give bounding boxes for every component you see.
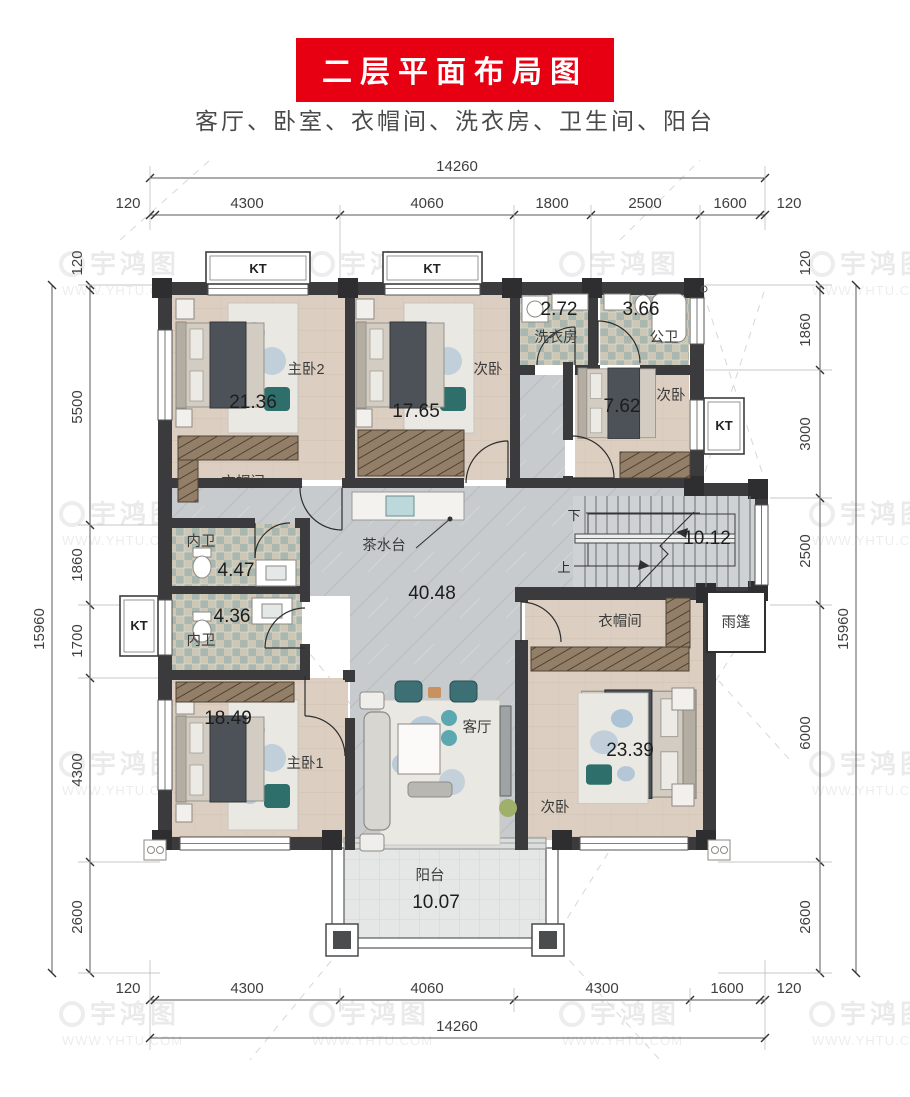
dim-label: 1860 bbox=[797, 313, 814, 346]
sink-basin bbox=[262, 604, 282, 618]
balcony-column-core bbox=[333, 931, 351, 949]
watermark bbox=[561, 999, 683, 1048]
armchair bbox=[450, 681, 477, 702]
dim-label: 120 bbox=[776, 980, 801, 997]
bed-bottom-label: 次卧 bbox=[541, 799, 570, 816]
side-table bbox=[360, 692, 384, 709]
dim-label: 5500 bbox=[69, 390, 86, 423]
dim-label: 2500 bbox=[628, 195, 661, 212]
hall-floor bbox=[520, 375, 565, 486]
wardrobe bbox=[176, 682, 294, 702]
stool bbox=[441, 730, 457, 746]
dim-label: 4060 bbox=[410, 195, 443, 212]
dim-label: 1700 bbox=[69, 624, 86, 657]
stair-down-label: 下 bbox=[567, 508, 580, 523]
bed-top bbox=[356, 322, 444, 408]
nightstand bbox=[176, 409, 192, 427]
dim-label: 6000 bbox=[797, 716, 814, 749]
master1-area: 18.49 bbox=[204, 708, 252, 729]
dim-label: 2500 bbox=[797, 534, 814, 567]
tea-sink bbox=[386, 496, 414, 516]
bed-top-area: 17.65 bbox=[392, 401, 440, 422]
laundry-label: 洗衣房 bbox=[534, 329, 578, 346]
pub-bath-label: 公卫 bbox=[650, 330, 679, 346]
kt-box: KT bbox=[206, 252, 310, 284]
living-label: 客厅 bbox=[463, 719, 492, 736]
dim-label: 120 bbox=[115, 195, 140, 212]
floorplan-page: 二层平面布局图 客厅、卧室、衣帽间、洗衣房、卫生间、阳台 bbox=[0, 0, 910, 1097]
bed-right-area: 7.62 bbox=[604, 396, 641, 417]
bath-low-area: 4.36 bbox=[214, 606, 251, 627]
wardrobe bbox=[358, 430, 464, 476]
wardrobe bbox=[620, 452, 690, 478]
stool bbox=[441, 710, 457, 726]
balcony-area: 10.07 bbox=[412, 892, 460, 913]
dim-label: 2600 bbox=[797, 900, 814, 933]
dim-label: 120 bbox=[115, 980, 140, 997]
wardrobe bbox=[178, 460, 198, 502]
wardrobe bbox=[666, 598, 690, 648]
dim-label: 4300 bbox=[69, 753, 86, 786]
dim-label: 4300 bbox=[230, 980, 263, 997]
nightstand bbox=[672, 784, 694, 806]
living-area: 40.48 bbox=[408, 583, 456, 604]
kt-label: KT bbox=[715, 418, 732, 433]
dim-label: 3000 bbox=[797, 417, 814, 450]
dim-label: 15960 bbox=[835, 608, 852, 650]
canopy-label: 雨篷 bbox=[722, 614, 751, 631]
dim-label: 4300 bbox=[230, 195, 263, 212]
watermark bbox=[811, 499, 910, 548]
tv-bench-table bbox=[408, 782, 452, 797]
side-table bbox=[360, 834, 384, 851]
stair-up-label: 上 bbox=[557, 560, 570, 575]
stairs-area: 10.12 bbox=[683, 528, 731, 549]
balcony-column-core bbox=[539, 931, 557, 949]
armchair bbox=[395, 681, 422, 702]
dim-label: 120 bbox=[69, 250, 86, 275]
dim-label: 120 bbox=[776, 195, 801, 212]
tv-cabinet bbox=[500, 706, 511, 796]
kt-label: KT bbox=[423, 261, 440, 276]
watermark bbox=[811, 249, 910, 298]
nightstand bbox=[356, 409, 372, 427]
dim-label: 1800 bbox=[535, 195, 568, 212]
nightstand bbox=[176, 804, 192, 822]
bed-bottom-area: 23.39 bbox=[606, 740, 654, 761]
watermark bbox=[311, 999, 433, 1048]
dim-label: 4060 bbox=[410, 980, 443, 997]
plant bbox=[499, 799, 517, 817]
cloak-left-label: 衣帽间 bbox=[221, 474, 265, 491]
cloak-right-label: 衣帽间 bbox=[598, 613, 642, 630]
dim-label: 14260 bbox=[436, 1018, 478, 1035]
pub-bath-area: 3.66 bbox=[623, 299, 660, 320]
dim-bottom: 120 4300 4060 4300 1600 120 14260 bbox=[115, 960, 801, 1050]
dim-label: 14260 bbox=[436, 158, 478, 175]
kt-box: KT bbox=[120, 596, 158, 656]
master2-area: 21.36 bbox=[229, 392, 277, 413]
kt-box: KT bbox=[383, 252, 482, 284]
bed-top-label: 次卧 bbox=[474, 361, 503, 378]
watermark bbox=[811, 999, 910, 1048]
master2-label: 主卧2 bbox=[287, 361, 324, 378]
balcony-label: 阳台 bbox=[416, 867, 445, 884]
kt-label: KT bbox=[249, 261, 266, 276]
dim-label: 4300 bbox=[585, 980, 618, 997]
sofa bbox=[364, 712, 390, 830]
tea-label: 茶水台 bbox=[362, 537, 406, 554]
dim-label: 1600 bbox=[710, 980, 743, 997]
wardrobe bbox=[531, 647, 689, 671]
master1-label: 主卧1 bbox=[286, 755, 323, 772]
bath-up-label: 内卫 bbox=[187, 533, 216, 550]
bed-right-label: 次卧 bbox=[657, 387, 686, 404]
canopy: 雨篷 bbox=[707, 592, 765, 652]
sink-basin bbox=[266, 566, 286, 580]
kt-label: KT bbox=[130, 618, 147, 633]
dim-label: 15960 bbox=[31, 608, 48, 650]
ottoman bbox=[428, 687, 441, 698]
balcony-wall bbox=[332, 938, 558, 948]
wardrobe bbox=[178, 436, 298, 460]
dim-label: 120 bbox=[797, 250, 814, 275]
nightstand bbox=[672, 688, 694, 710]
floorplan-canvas: 宇鸿图 WWW.YHTU.COM bbox=[0, 0, 910, 1097]
nightstand bbox=[176, 299, 194, 319]
laundry-area: 2.72 bbox=[541, 299, 578, 320]
dim-label: 1600 bbox=[713, 195, 746, 212]
watermark bbox=[811, 749, 910, 798]
coffee-table bbox=[398, 724, 440, 774]
kt-box: KT bbox=[704, 398, 744, 454]
dim-label: 1860 bbox=[69, 548, 86, 581]
watermark bbox=[61, 999, 183, 1048]
bath-up-area: 4.47 bbox=[218, 560, 255, 581]
dim-label: 2600 bbox=[69, 900, 86, 933]
bath-low-label: 内卫 bbox=[187, 632, 216, 649]
toilet bbox=[193, 556, 211, 578]
nightstand bbox=[356, 299, 374, 319]
